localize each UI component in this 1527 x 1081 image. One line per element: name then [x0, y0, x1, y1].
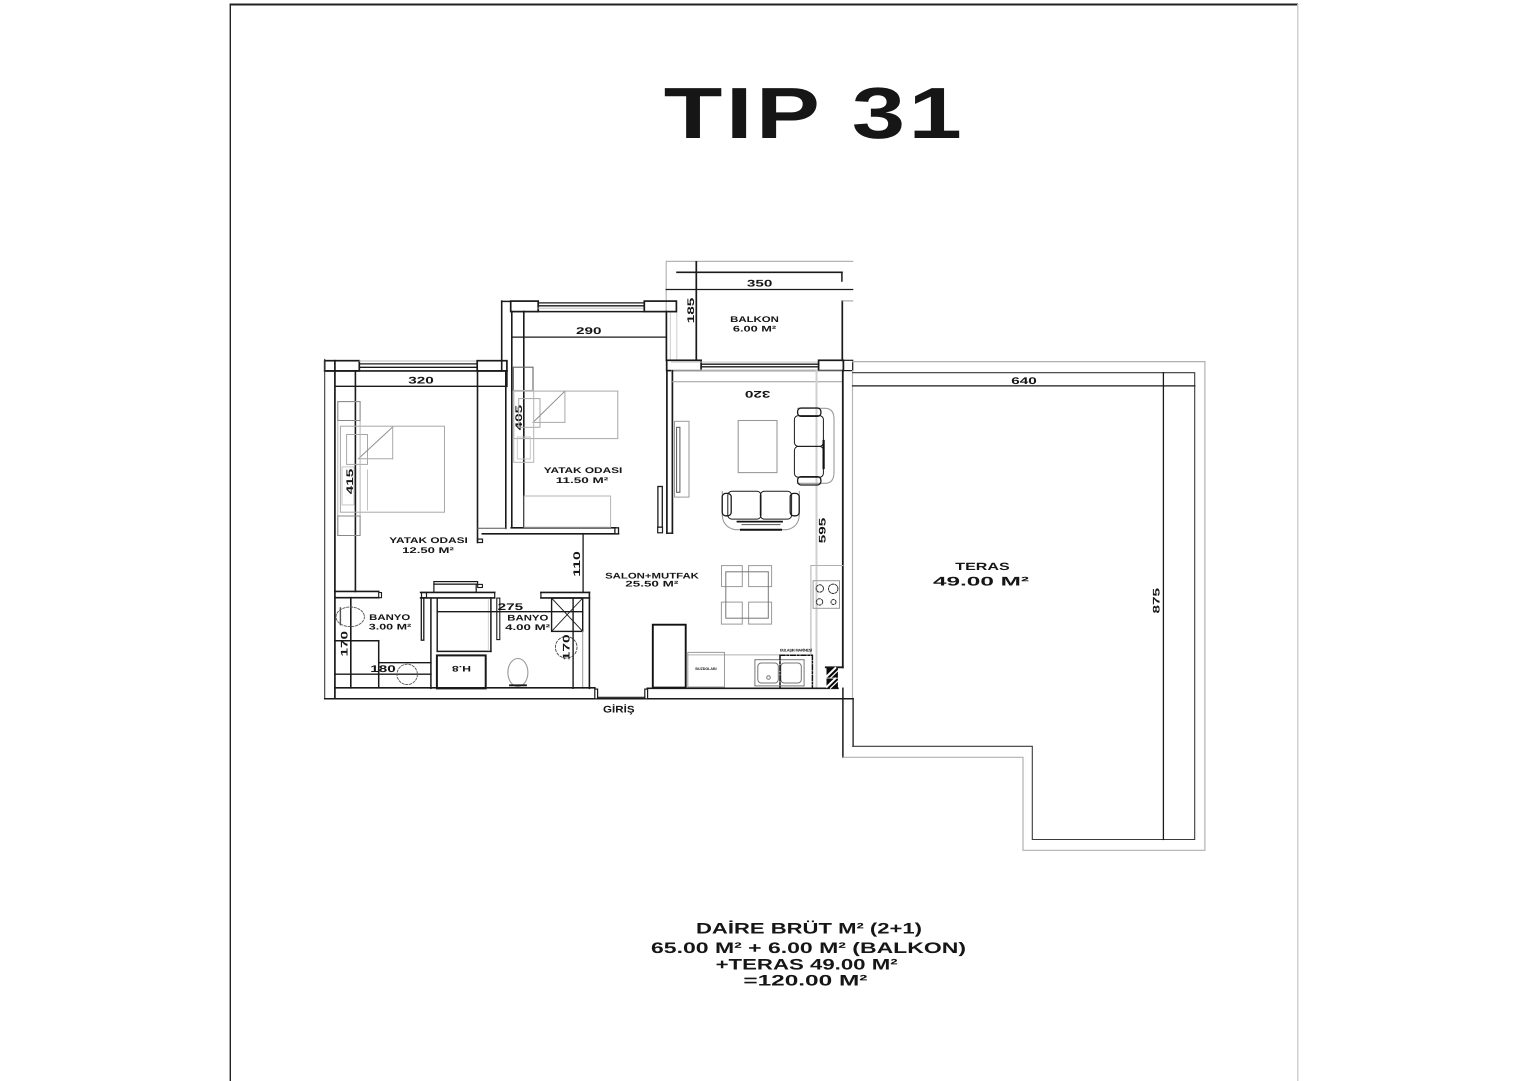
- svg-text:BALKON: BALKON: [730, 315, 779, 324]
- svg-text:65.00 M² + 6.00 M² (BALKON): 65.00 M² + 6.00 M² (BALKON): [651, 940, 966, 957]
- svg-text:TIP 31: TIP 31: [664, 73, 965, 154]
- svg-text:110: 110: [572, 551, 583, 577]
- svg-text:BULAŞIK MAKİNESİ: BULAŞIK MAKİNESİ: [780, 648, 812, 653]
- svg-text:320: 320: [745, 388, 771, 399]
- svg-text:YATAK ODASI: YATAK ODASI: [544, 466, 623, 475]
- svg-text:290: 290: [576, 326, 602, 337]
- svg-text:275: 275: [498, 602, 525, 613]
- svg-text:6.00 M²: 6.00 M²: [733, 325, 777, 334]
- svg-text:640: 640: [1011, 376, 1037, 387]
- svg-text:875: 875: [1151, 587, 1162, 614]
- svg-text:4.00 M²: 4.00 M²: [505, 623, 550, 632]
- svg-text:BANYO: BANYO: [507, 613, 549, 622]
- svg-text:BUZDOLABI: BUZDOLABI: [695, 667, 716, 671]
- svg-text:TERAS: TERAS: [955, 561, 1009, 573]
- svg-text:BANYO: BANYO: [369, 613, 411, 622]
- svg-text:185: 185: [686, 297, 697, 324]
- svg-text:595: 595: [818, 517, 829, 544]
- svg-text:12.50 M²: 12.50 M²: [402, 546, 454, 555]
- svg-text:350: 350: [747, 279, 773, 290]
- svg-text:49.00 M²: 49.00 M²: [933, 574, 1029, 588]
- svg-text:405: 405: [514, 404, 525, 431]
- svg-text:=120.00 M²: =120.00 M²: [743, 973, 867, 990]
- svg-text:11.50 M²: 11.50 M²: [556, 476, 609, 485]
- svg-text:170: 170: [339, 631, 350, 657]
- svg-text:320: 320: [408, 376, 434, 387]
- svg-text:180: 180: [370, 664, 396, 675]
- svg-text:+TERAS 49.00 M²: +TERAS 49.00 M²: [716, 957, 898, 974]
- svg-text:H.8: H.8: [451, 664, 471, 673]
- svg-text:3.00 M²: 3.00 M²: [369, 622, 412, 631]
- svg-text:170: 170: [562, 634, 573, 660]
- svg-text:GİRİŞ: GİRİŞ: [603, 703, 635, 715]
- svg-text:25.50 M²: 25.50 M²: [625, 580, 678, 589]
- svg-text:YATAK ODASI: YATAK ODASI: [389, 536, 468, 545]
- svg-text:DAİRE BRÜT M² (2+1): DAİRE BRÜT M² (2+1): [696, 921, 922, 938]
